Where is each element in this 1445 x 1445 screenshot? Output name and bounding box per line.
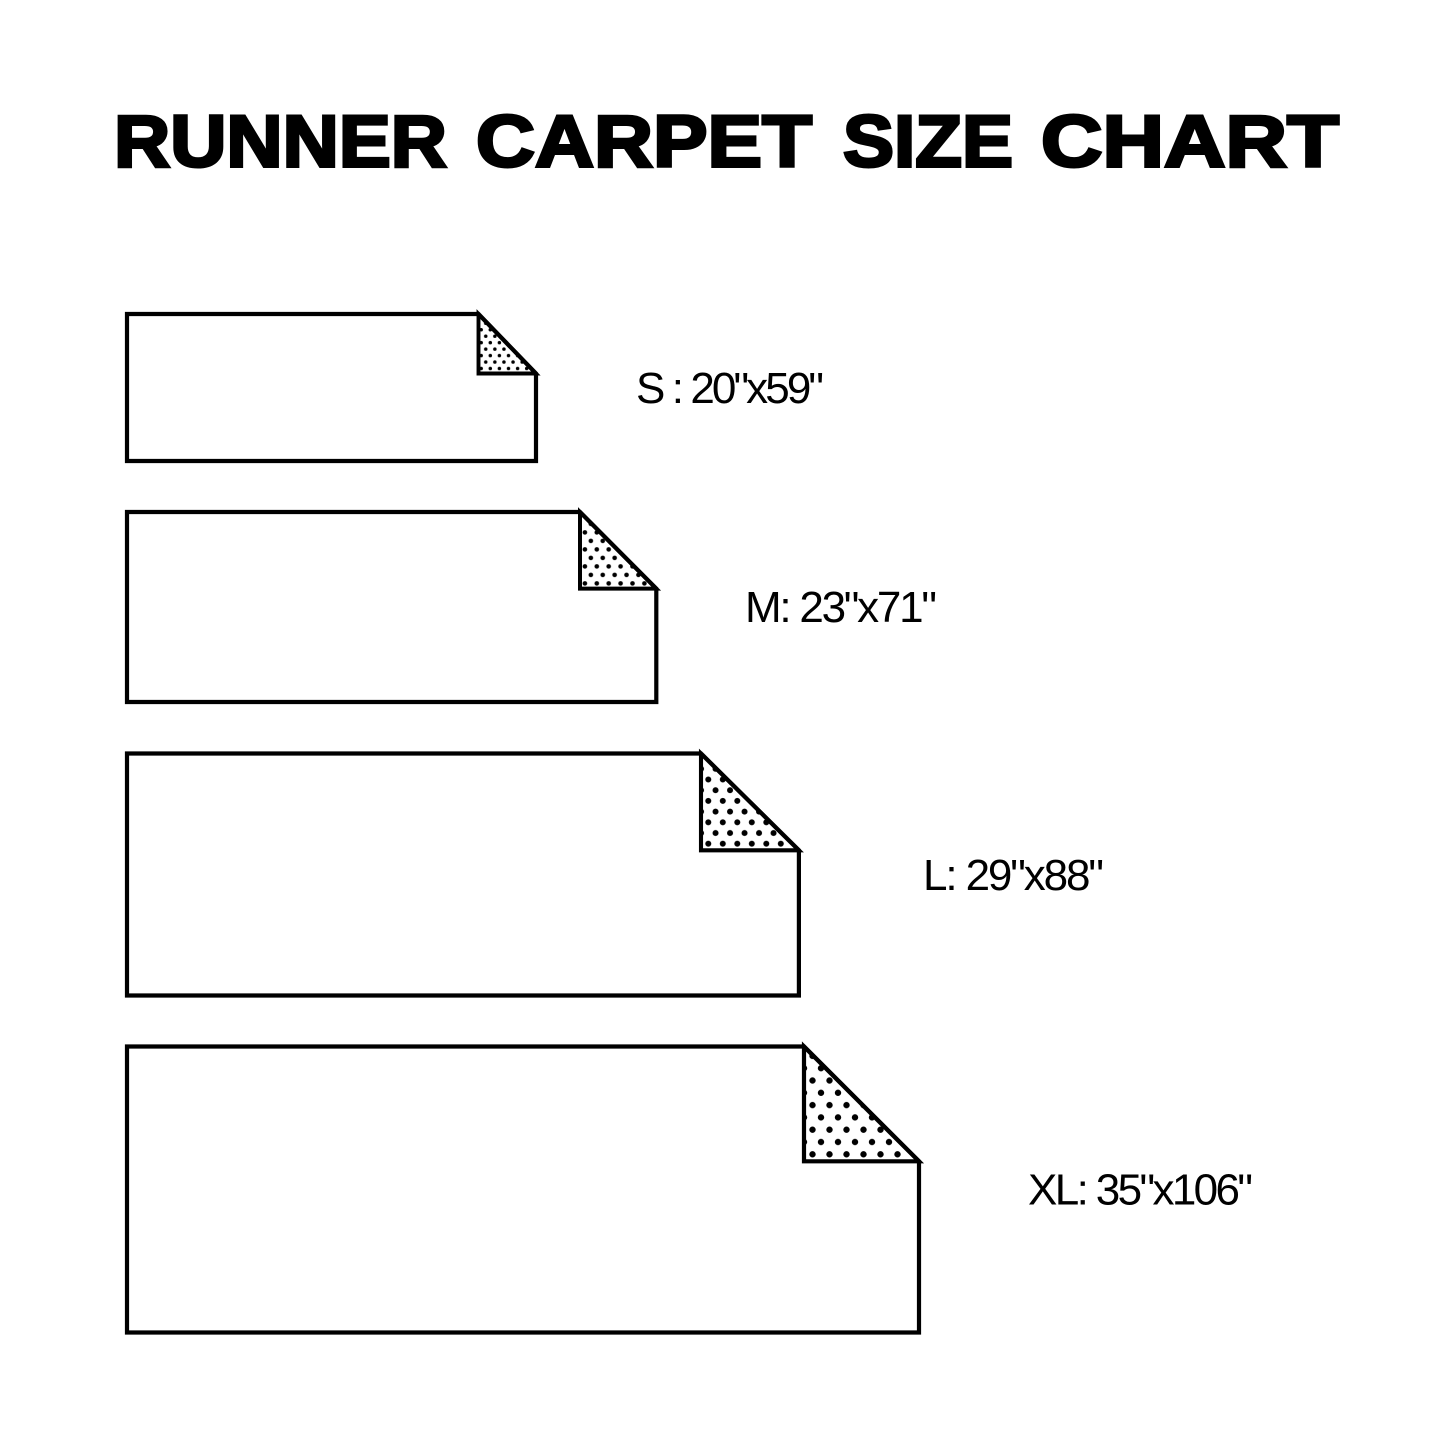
svg-text:S : 20"x59": S : 20"x59" — [636, 364, 824, 413]
svg-text:XL: 35"x106": XL: 35"x106" — [1028, 1166, 1253, 1215]
svg-text:RUNNER: RUNNER — [114, 102, 447, 183]
svg-text:SIZE: SIZE — [843, 102, 1013, 183]
svg-text:M: 23"x71": M: 23"x71" — [745, 583, 937, 632]
svg-text:CARPET: CARPET — [476, 102, 812, 183]
svg-text:CHART: CHART — [1041, 102, 1339, 183]
svg-text:L: 29"x88": L: 29"x88" — [923, 851, 1104, 900]
